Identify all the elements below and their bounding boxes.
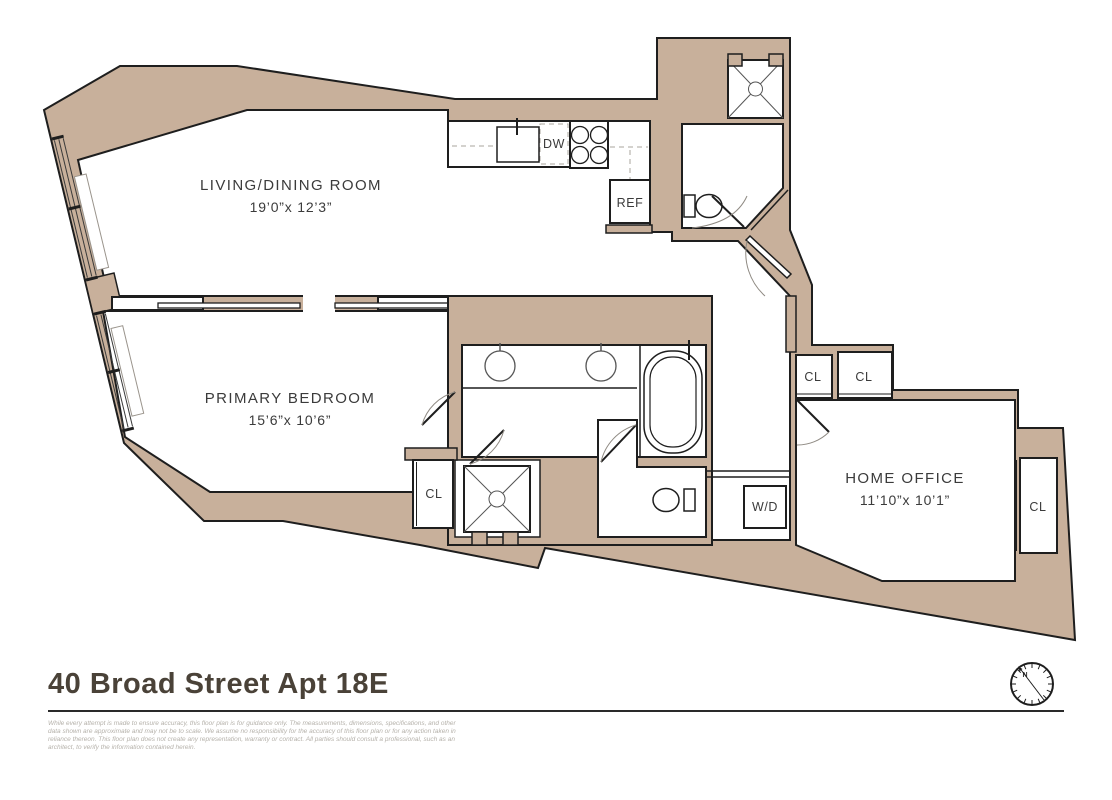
bedroom-label: PRIMARY BEDROOM: [205, 390, 375, 407]
wall-stub: [786, 296, 796, 352]
page-title: 40 Broad Street Apt 18E: [48, 668, 389, 701]
disclaimer-line: reliance thereon. This floor plan does n…: [48, 736, 488, 744]
disclaimer-line: data shown are approximate and may not b…: [48, 728, 488, 736]
living-room-dims: 19’0”x 12’3”: [250, 199, 333, 215]
dishwasher-label: DW: [543, 137, 565, 151]
disclaimer-line: While every attempt is made to ensure ac…: [48, 720, 488, 728]
shower-icon: [728, 54, 783, 118]
compass-north-label: N: [1022, 672, 1027, 679]
stove-icon: [570, 121, 608, 168]
washer-dryer-label: W/D: [752, 500, 778, 514]
wall-stub: [606, 225, 652, 233]
toilet-icon: [653, 489, 695, 512]
closet-label: CL: [855, 370, 872, 384]
office-label: HOME OFFICE: [845, 470, 965, 487]
door-swing-arc: [797, 432, 829, 445]
refrigerator-label: REF: [617, 196, 644, 210]
office-dims: 11’10”x 10’1”: [860, 492, 950, 508]
shower-icon: [455, 460, 540, 545]
disclaimer-line: architect, to verify the information con…: [48, 744, 488, 752]
office-door: [797, 400, 829, 445]
bedroom-dims: 15’6”x 10’6”: [249, 412, 332, 428]
floor-plan-drawing: LIVING/DINING ROOM 19’0”x 12’3” PRIMARY …: [0, 0, 1112, 660]
floor-plan-page: LIVING/DINING ROOM 19’0”x 12’3” PRIMARY …: [0, 0, 1112, 800]
pocket-door-panel: [158, 303, 300, 308]
living-room-label: LIVING/DINING ROOM: [200, 177, 382, 194]
disclaimer-text: While every attempt is made to ensure ac…: [48, 720, 488, 752]
toilet-icon: [684, 195, 722, 218]
closet-label: CL: [425, 487, 442, 501]
closet-label: CL: [804, 370, 821, 384]
compass-icon: N: [1002, 654, 1062, 714]
title-divider: [48, 710, 1064, 712]
primary-bath: [405, 296, 712, 545]
closet-label: CL: [1029, 500, 1046, 514]
